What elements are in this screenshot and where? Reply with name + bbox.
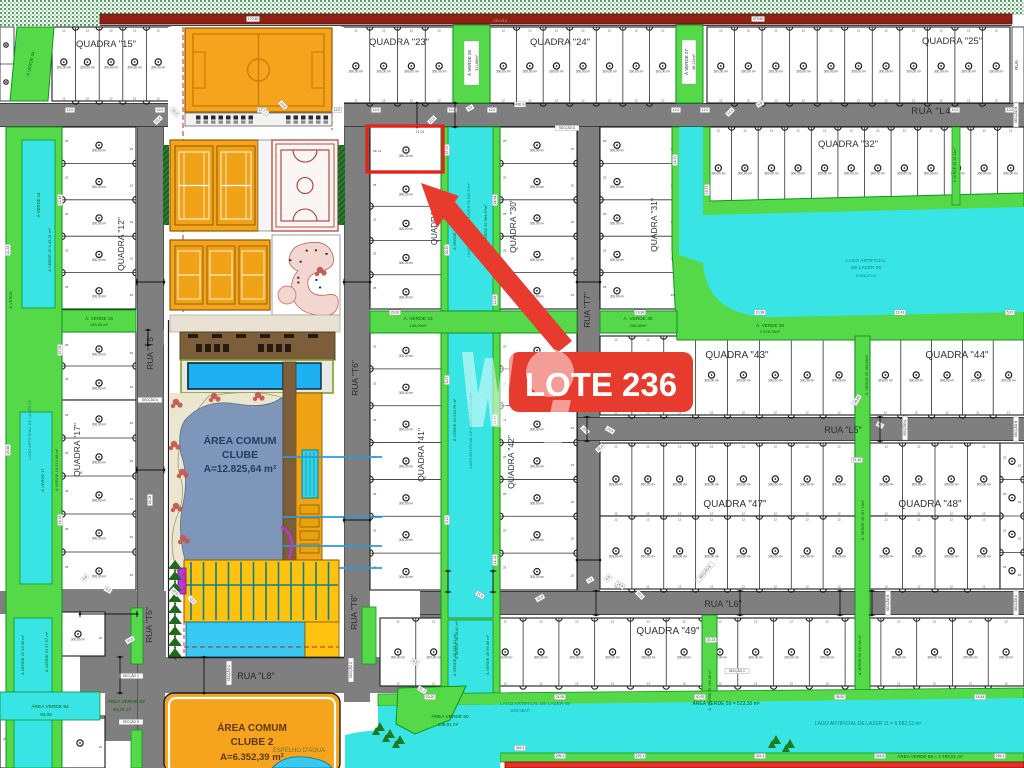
svg-text:25: 25 [1018,500,1022,504]
svg-text:12: 12 [915,411,919,415]
svg-text:300,00 m²: 300,00 m² [768,483,782,487]
svg-text:25: 25 [65,176,69,180]
svg-text:300,00 m²: 300,00 m² [977,555,991,559]
svg-text:SECÇÃO B: SECÇÃO B [1013,107,1018,123]
svg-text:12: 12 [646,445,650,449]
svg-text:Á VERDE 17: Á VERDE 17 [40,468,45,492]
svg-text:13,44: 13,44 [58,196,62,205]
svg-text:12: 12 [802,29,806,33]
svg-text:SECÇÃO A: SECÇÃO A [559,125,576,130]
svg-text:300,00 m²: 300,00 m² [57,66,71,70]
svg-text:CR-214: CR-214 [493,18,508,23]
svg-text:139,81 m²: 139,81 m² [438,722,459,727]
svg-text:12: 12 [86,29,90,33]
svg-text:12: 12 [157,29,161,33]
svg-text:27,05: 27,05 [58,346,62,355]
svg-text:25: 25 [571,293,575,297]
svg-text:498 m: 498 m [515,103,525,107]
svg-text:300,00 m²: 300,00 m² [641,555,655,559]
svg-text:QUADRA "43": QUADRA "43" [705,350,769,361]
svg-text:300,00 m²: 300,00 m² [530,538,544,542]
svg-text:25: 25 [373,217,377,221]
svg-text:300,00 m²: 300,00 m² [92,575,106,579]
svg-text:ESPELHO D'ÁGUA: ESPELHO D'ÁGUA [273,747,326,754]
svg-text:315,8: 315,8 [876,754,885,758]
svg-text:12: 12 [806,518,810,522]
svg-text:206,58m²: 206,58m² [630,323,648,328]
svg-text:12: 12 [109,29,113,33]
svg-text:12: 12 [614,445,618,449]
svg-text:12: 12 [850,129,854,133]
svg-text:24,08: 24,08 [148,496,152,505]
svg-text:19,15: 19,15 [58,516,62,525]
svg-text:300,00 m²: 300,00 m² [912,483,926,487]
svg-text:QUADRA "17": QUADRA "17" [72,423,82,477]
svg-text:25: 25 [373,344,377,348]
svg-text:12: 12 [884,29,888,33]
svg-text:12: 12 [742,518,746,522]
svg-text:12: 12 [982,518,986,522]
svg-text:12: 12 [1004,682,1008,686]
svg-text:12: 12 [995,29,999,33]
svg-text:25: 25 [373,183,377,187]
svg-text:12: 12 [885,585,889,589]
svg-text:300,00 m²: 300,00 m² [432,70,446,74]
svg-text:300,00 m²: 300,00 m² [127,66,141,70]
svg-text:25: 25 [130,497,134,501]
svg-text:CLUBE 2: CLUBE 2 [231,737,274,748]
svg-text:300,00 m²: 300,00 m² [800,379,814,383]
svg-text:25: 25 [65,413,69,417]
svg-text:12: 12 [897,682,901,686]
svg-text:25: 25 [571,184,575,188]
svg-text:21,46: 21,46 [853,458,862,462]
svg-text:12: 12 [719,99,723,103]
svg-text:300,00 m²: 300,00 m² [768,379,782,383]
svg-text:RUA "L4": RUA "L4" [911,106,954,117]
svg-text:25: 25 [603,212,607,216]
svg-text:10,98: 10,98 [756,311,765,315]
svg-text:12: 12 [133,97,137,101]
svg-text:300,00 m²: 300,00 m² [817,172,831,176]
svg-text:25: 25 [571,256,575,260]
svg-text:Á VERDE 36 28,12m²: Á VERDE 36 28,12m² [953,147,957,183]
svg-text:380,32 m²: 380,32 m² [399,154,413,158]
svg-text:349,56m²: 349,56m² [510,708,530,713]
svg-text:12: 12 [806,585,810,589]
svg-text:25: 25 [571,463,575,467]
svg-text:19,37: 19,37 [705,186,709,195]
svg-text:300,00 m²: 300,00 m² [610,294,624,298]
svg-text:12,0: 12,0 [952,108,959,112]
svg-text:12: 12 [774,518,778,522]
svg-text:Á VERDE 43 510,76 m²: Á VERDE 43 510,76 m² [452,398,457,441]
svg-text:5,11: 5,11 [445,517,449,523]
svg-text:12: 12 [837,445,841,449]
svg-text:12: 12 [678,585,682,589]
svg-text:300,00 m²: 300,00 m² [977,172,991,176]
svg-text:12: 12 [1007,411,1011,415]
svg-text:12: 12 [976,411,980,415]
svg-text:12: 12 [995,99,999,103]
svg-text:300,00 m²: 300,00 m² [784,656,798,660]
svg-text:18,64: 18,64 [976,695,985,699]
svg-text:25: 25 [65,489,69,493]
svg-text:6,27: 6,27 [445,377,449,384]
svg-text:25: 25 [373,492,377,496]
svg-text:12: 12 [502,29,506,33]
svg-text:25: 25 [1018,463,1022,467]
svg-text:300,00 m²: 300,00 m² [92,423,106,427]
svg-text:300,00 m²: 300,00 m² [796,70,810,74]
svg-text:RUA "T7": RUA "T7" [582,292,592,328]
svg-text:12: 12 [528,99,532,103]
svg-text:300,00 m²: 300,00 m² [844,172,858,176]
svg-text:ÁREA VERDE 64: ÁREA VERDE 64 [31,703,69,710]
svg-text:255,3: 255,3 [996,754,1005,758]
svg-text:12: 12 [884,99,888,103]
svg-text:12,0: 12,0 [157,108,164,112]
svg-text:12: 12 [982,512,986,516]
svg-text:RUA "T6": RUA "T6" [350,360,360,396]
svg-text:322,4: 322,4 [756,754,765,758]
svg-text:25: 25 [130,573,134,577]
svg-text:12: 12 [837,585,841,589]
svg-text:5,37: 5,37 [1007,311,1014,315]
svg-text:12: 12 [754,682,758,686]
svg-text:12: 12 [646,512,650,516]
svg-text:25: 25 [130,184,134,188]
svg-text:300,00 m²: 300,00 m² [530,222,544,226]
svg-text:12: 12 [967,99,971,103]
svg-text:300,00 m²: 300,00 m² [610,222,624,226]
svg-text:300,00 m²: 300,00 m² [530,149,544,153]
svg-text:300,00 m²: 300,00 m² [399,465,413,469]
svg-text:25: 25 [130,147,134,151]
svg-text:12: 12 [396,682,400,686]
svg-text:25: 25 [130,421,134,425]
svg-text:ÁREA VERDE 63: ÁREA VERDE 63 [107,698,145,705]
svg-text:300,00 m²: 300,00 m² [673,555,687,559]
svg-text:QUADRA "30": QUADRA "30" [508,199,518,253]
svg-text:300,00 m²: 300,00 m² [496,70,510,74]
svg-text:QUADRA "48": QUADRA "48" [898,499,962,510]
svg-text:300,00 m²: 300,00 m² [927,656,941,660]
svg-text:300,00 m²: 300,00 m² [871,172,885,176]
svg-text:300,00 m²: 300,00 m² [736,483,750,487]
svg-text:300,00 m²: 300,00 m² [92,461,106,465]
svg-text:300,00 m²: 300,00 m² [704,483,718,487]
svg-text:12: 12 [410,29,414,33]
svg-text:12: 12 [611,620,615,624]
svg-text:300,00 m²: 300,00 m² [989,70,1003,74]
svg-text:12: 12 [528,29,532,33]
svg-text:170,35: 170,35 [248,17,258,21]
svg-text:40,92: 40,92 [696,695,705,699]
svg-text:QUADRA "41": QUADRA "41" [416,428,426,482]
svg-text:12: 12 [912,99,916,103]
svg-text:300,00 m²: 300,00 m² [404,70,418,74]
svg-text:12: 12 [678,445,682,449]
svg-text:12: 12 [742,411,746,415]
svg-text:12: 12 [354,99,358,103]
svg-text:25: 25 [373,418,377,422]
svg-text:25: 25 [503,492,507,496]
svg-text:19,96: 19,96 [636,311,645,315]
svg-text:12: 12 [86,97,90,101]
svg-text:300,00 m²: 300,00 m² [1004,172,1018,176]
svg-text:25: 25 [373,286,377,290]
svg-text:1.578,78m²: 1.578,78m² [760,329,781,334]
svg-text:300,00 m²: 300,00 m² [641,656,655,660]
svg-text:25: 25 [603,285,607,289]
svg-text:12: 12 [608,99,612,103]
svg-text:345,3: 345,3 [516,746,525,750]
svg-text:12: 12 [710,585,714,589]
svg-text:25: 25 [373,529,377,533]
svg-text:300,00 m²: 300,00 m² [971,379,985,383]
svg-text:12: 12 [969,682,973,686]
svg-text:RUA "T5": RUA "T5" [145,334,155,370]
svg-text:300,00 m²: 300,00 m² [800,555,814,559]
svg-text:300,00 m²: 300,00 m² [791,172,805,176]
svg-text:300,00 m²: 300,00 m² [940,379,954,383]
svg-text:21,33: 21,33 [6,246,10,255]
svg-text:300,00 m²: 300,00 m² [530,465,544,469]
svg-text:25: 25 [130,535,134,539]
svg-text:300,00 m²: 300,00 m² [924,172,938,176]
svg-text:QUADRA "25": QUADRA "25" [922,36,982,47]
svg-text:12: 12 [502,99,506,103]
svg-text:300,00 m²: 300,00 m² [963,656,977,660]
svg-text:12: 12 [614,512,618,516]
svg-text:20,24: 20,24 [707,638,716,642]
svg-text:ÁREA VERDE 58 = 1.793,51 m²: ÁREA VERDE 58 = 1.793,51 m² [897,753,963,759]
svg-text:12: 12 [581,29,585,33]
svg-text:12: 12 [742,445,746,449]
svg-text:300,00 m²: 300,00 m² [576,70,590,74]
svg-text:25: 25 [571,574,575,578]
svg-text:12: 12 [539,620,543,624]
svg-text:25: 25 [1003,565,1007,569]
svg-text:23,92: 23,92 [391,311,400,315]
svg-text:12: 12 [614,338,618,342]
svg-text:12: 12 [678,518,682,522]
svg-text:300,00 m²: 300,00 m² [934,70,948,74]
svg-text:300,00 m²: 300,00 m² [738,172,752,176]
svg-text:12: 12 [718,620,722,624]
svg-text:12: 12 [774,445,778,449]
svg-text:300,00 m²: 300,00 m² [736,555,750,559]
svg-text:300,00 m²: 300,00 m² [609,555,623,559]
svg-text:ÁREA COMUM: ÁREA COMUM [203,434,276,447]
svg-text:12: 12 [917,512,921,516]
svg-text:300,00 m²: 300,00 m² [399,354,413,358]
svg-text:12: 12 [823,129,827,133]
svg-text:300,00 m²: 300,00 m² [656,70,670,74]
svg-text:12: 12 [806,411,810,415]
svg-text:12: 12 [432,682,436,686]
svg-text:25: 25 [603,139,607,143]
svg-text:25: 25 [65,285,69,289]
svg-text:12: 12 [829,99,833,103]
svg-text:Á VERDE: Á VERDE [8,291,13,309]
svg-text:25: 25 [571,537,575,541]
svg-text:12: 12 [747,29,751,33]
svg-text:LAGO ARTIFICIAL DE LAZER 03: LAGO ARTIFICIAL DE LAZER 03 [27,399,32,459]
svg-text:SECÇÃO D: SECÇÃO D [123,719,140,724]
svg-text:12: 12 [710,518,714,522]
svg-text:300,00 m²: 300,00 m² [999,656,1013,660]
svg-text:RUA "L6": RUA "L6" [704,599,741,609]
svg-text:229,1: 229,1 [636,754,645,758]
svg-text:12: 12 [837,411,841,415]
svg-text:12: 12 [382,99,386,103]
svg-text:ÁREA VERDE 59 = 513,35 m²: ÁREA VERDE 59 = 513,35 m² [692,700,759,707]
svg-text:QUADRA "42": QUADRA "42" [506,435,516,489]
svg-text:300,00 m²: 300,00 m² [530,575,544,579]
svg-text:12,0: 12,0 [702,108,709,112]
svg-text:12: 12 [382,29,386,33]
svg-text:12: 12 [742,585,746,589]
svg-text:12: 12 [774,99,778,103]
svg-text:25: 25 [65,248,69,252]
svg-text:12: 12 [62,29,66,33]
svg-text:Á. VERDE 16: Á. VERDE 16 [85,315,113,321]
svg-text:LAGO ARTIFICIAL: LAGO ARTIFICIAL [846,258,886,264]
svg-text:25: 25 [1003,492,1007,496]
svg-text:12: 12 [917,445,921,449]
svg-text:25: 25 [65,212,69,216]
svg-text:300,00 m²: 300,00 m² [832,483,846,487]
svg-text:Á. VERDE 46 157,76m²: Á. VERDE 46 157,76m² [861,499,865,540]
svg-text:12: 12 [539,682,543,686]
svg-text:RUA "T6": RUA "T6" [349,594,359,630]
svg-text:QUADRA "23": QUADRA "23" [369,37,429,48]
svg-text:12,0: 12,0 [373,108,380,112]
svg-text:300,00 m²: 300,00 m² [104,66,118,70]
svg-text:Á VERDE 14: Á VERDE 14 [36,192,41,217]
svg-text:300,00 m²: 300,00 m² [399,428,413,432]
svg-text:12: 12 [796,129,800,133]
svg-text:12: 12 [806,445,810,449]
svg-text:12: 12 [634,29,638,33]
svg-text:Á. VERDE 38: Á. VERDE 38 [756,322,784,328]
svg-text:300,00 m²: 300,00 m² [399,538,413,542]
svg-text:12: 12 [945,411,949,415]
svg-text:SECÇÃO B: SECÇÃO B [885,595,890,611]
svg-text:12: 12 [354,29,358,33]
svg-text:25: 25 [99,636,103,640]
svg-text:300,00 m²: 300,00 m² [879,555,893,559]
svg-text:12: 12 [885,512,889,516]
svg-text:12: 12 [710,445,714,449]
svg-text:300,00 m²: 300,00 m² [399,295,413,299]
svg-text:SECÇÃO C: SECÇÃO C [729,668,746,673]
svg-text:300,00 m²: 300,00 m² [92,149,106,153]
svg-text:300,00 m²: 300,00 m² [530,185,544,189]
svg-text:300,00 m²: 300,00 m² [820,656,834,660]
svg-text:300,00 m²: 300,00 m² [977,483,991,487]
svg-text:12: 12 [646,585,650,589]
svg-text:RUA "T5": RUA "T5" [144,607,154,643]
svg-text:300,00 m²: 300,00 m² [610,185,624,189]
svg-text:300,00 m²: 300,00 m² [704,379,718,383]
svg-text:12: 12 [754,620,758,624]
svg-text:25: 25 [503,344,507,348]
svg-text:QUADRA "49": QUADRA "49" [636,626,700,637]
svg-text:25: 25 [503,176,507,180]
svg-text:25: 25 [503,566,507,570]
svg-text:300,00 m²: 300,00 m² [349,70,363,74]
svg-text:300,00 m²: 300,00 m² [391,656,405,660]
svg-text:25: 25 [373,252,377,256]
svg-text:300,00 m²: 300,00 m² [534,656,548,660]
svg-text:311,88m²: 311,88m² [475,54,479,70]
svg-text:12: 12 [829,29,833,33]
svg-text:25: 25 [671,293,675,297]
svg-text:QUADRA "31": QUADRA "31" [649,198,659,252]
svg-text:300,00 m²: 300,00 m² [570,656,584,660]
svg-text:25: 25 [99,745,103,749]
svg-text:12: 12 [837,512,841,516]
svg-text:25: 25 [571,147,575,151]
svg-text:12: 12 [634,99,638,103]
svg-text:300,00 m²: 300,00 m² [523,70,537,74]
svg-text:300,00 m²: 300,00 m² [549,70,563,74]
svg-text:300,00 m²: 300,00 m² [399,261,413,265]
svg-text:300,00 m²: 300,00 m² [399,193,413,197]
svg-text:A=12.825,64 m²: A=12.825,64 m² [204,464,277,475]
svg-text:SECÇÃO D: SECÇÃO D [226,664,231,681]
svg-text:12: 12 [917,518,921,522]
svg-text:RUA: RUA [1014,60,1019,70]
svg-text:12,0: 12,0 [1007,108,1014,112]
svg-text:12: 12 [437,99,441,103]
svg-text:300,00 m²: 300,00 m² [878,379,892,383]
svg-text:300,00 m²: 300,00 m² [602,70,616,74]
svg-text:12: 12 [770,129,774,133]
svg-text:300,00 m²: 300,00 m² [714,70,728,74]
svg-text:12: 12 [717,129,721,133]
svg-text:25: 25 [571,426,575,430]
svg-text:300,00 m²: 300,00 m² [832,379,846,383]
svg-text:25: 25 [65,565,69,569]
svg-text:12: 12 [1004,620,1008,624]
svg-text:25: 25 [65,527,69,531]
svg-text:12: 12 [790,620,794,624]
svg-text:300,00 m²: 300,00 m² [906,70,920,74]
svg-text:12: 12 [1009,129,1013,133]
svg-text:25: 25 [503,212,507,216]
svg-text:Á VERDE 15 9.43,31 m²: Á VERDE 15 9.43,31 m² [47,228,52,272]
svg-text:12: 12 [504,682,508,686]
svg-text:12: 12 [903,129,907,133]
svg-text:24,00: 24,00 [556,695,565,699]
svg-text:300,00 m²: 300,00 m² [879,70,893,74]
svg-text:300,00 m²: 300,00 m² [151,66,165,70]
svg-text:25: 25 [503,248,507,252]
svg-text:25: 25 [503,139,507,143]
svg-text:12: 12 [950,445,954,449]
svg-text:300,00 m²: 300,00 m² [71,638,85,642]
svg-text:12: 12 [710,512,714,516]
svg-text:300,00 m²: 300,00 m² [909,379,923,383]
svg-text:38,92: 38,92 [836,695,845,699]
svg-text:300,00 m²: 300,00 m² [399,575,413,579]
svg-text:300,00 m²: 300,00 m² [609,483,623,487]
svg-text:300,00 m²: 300,00 m² [673,483,687,487]
